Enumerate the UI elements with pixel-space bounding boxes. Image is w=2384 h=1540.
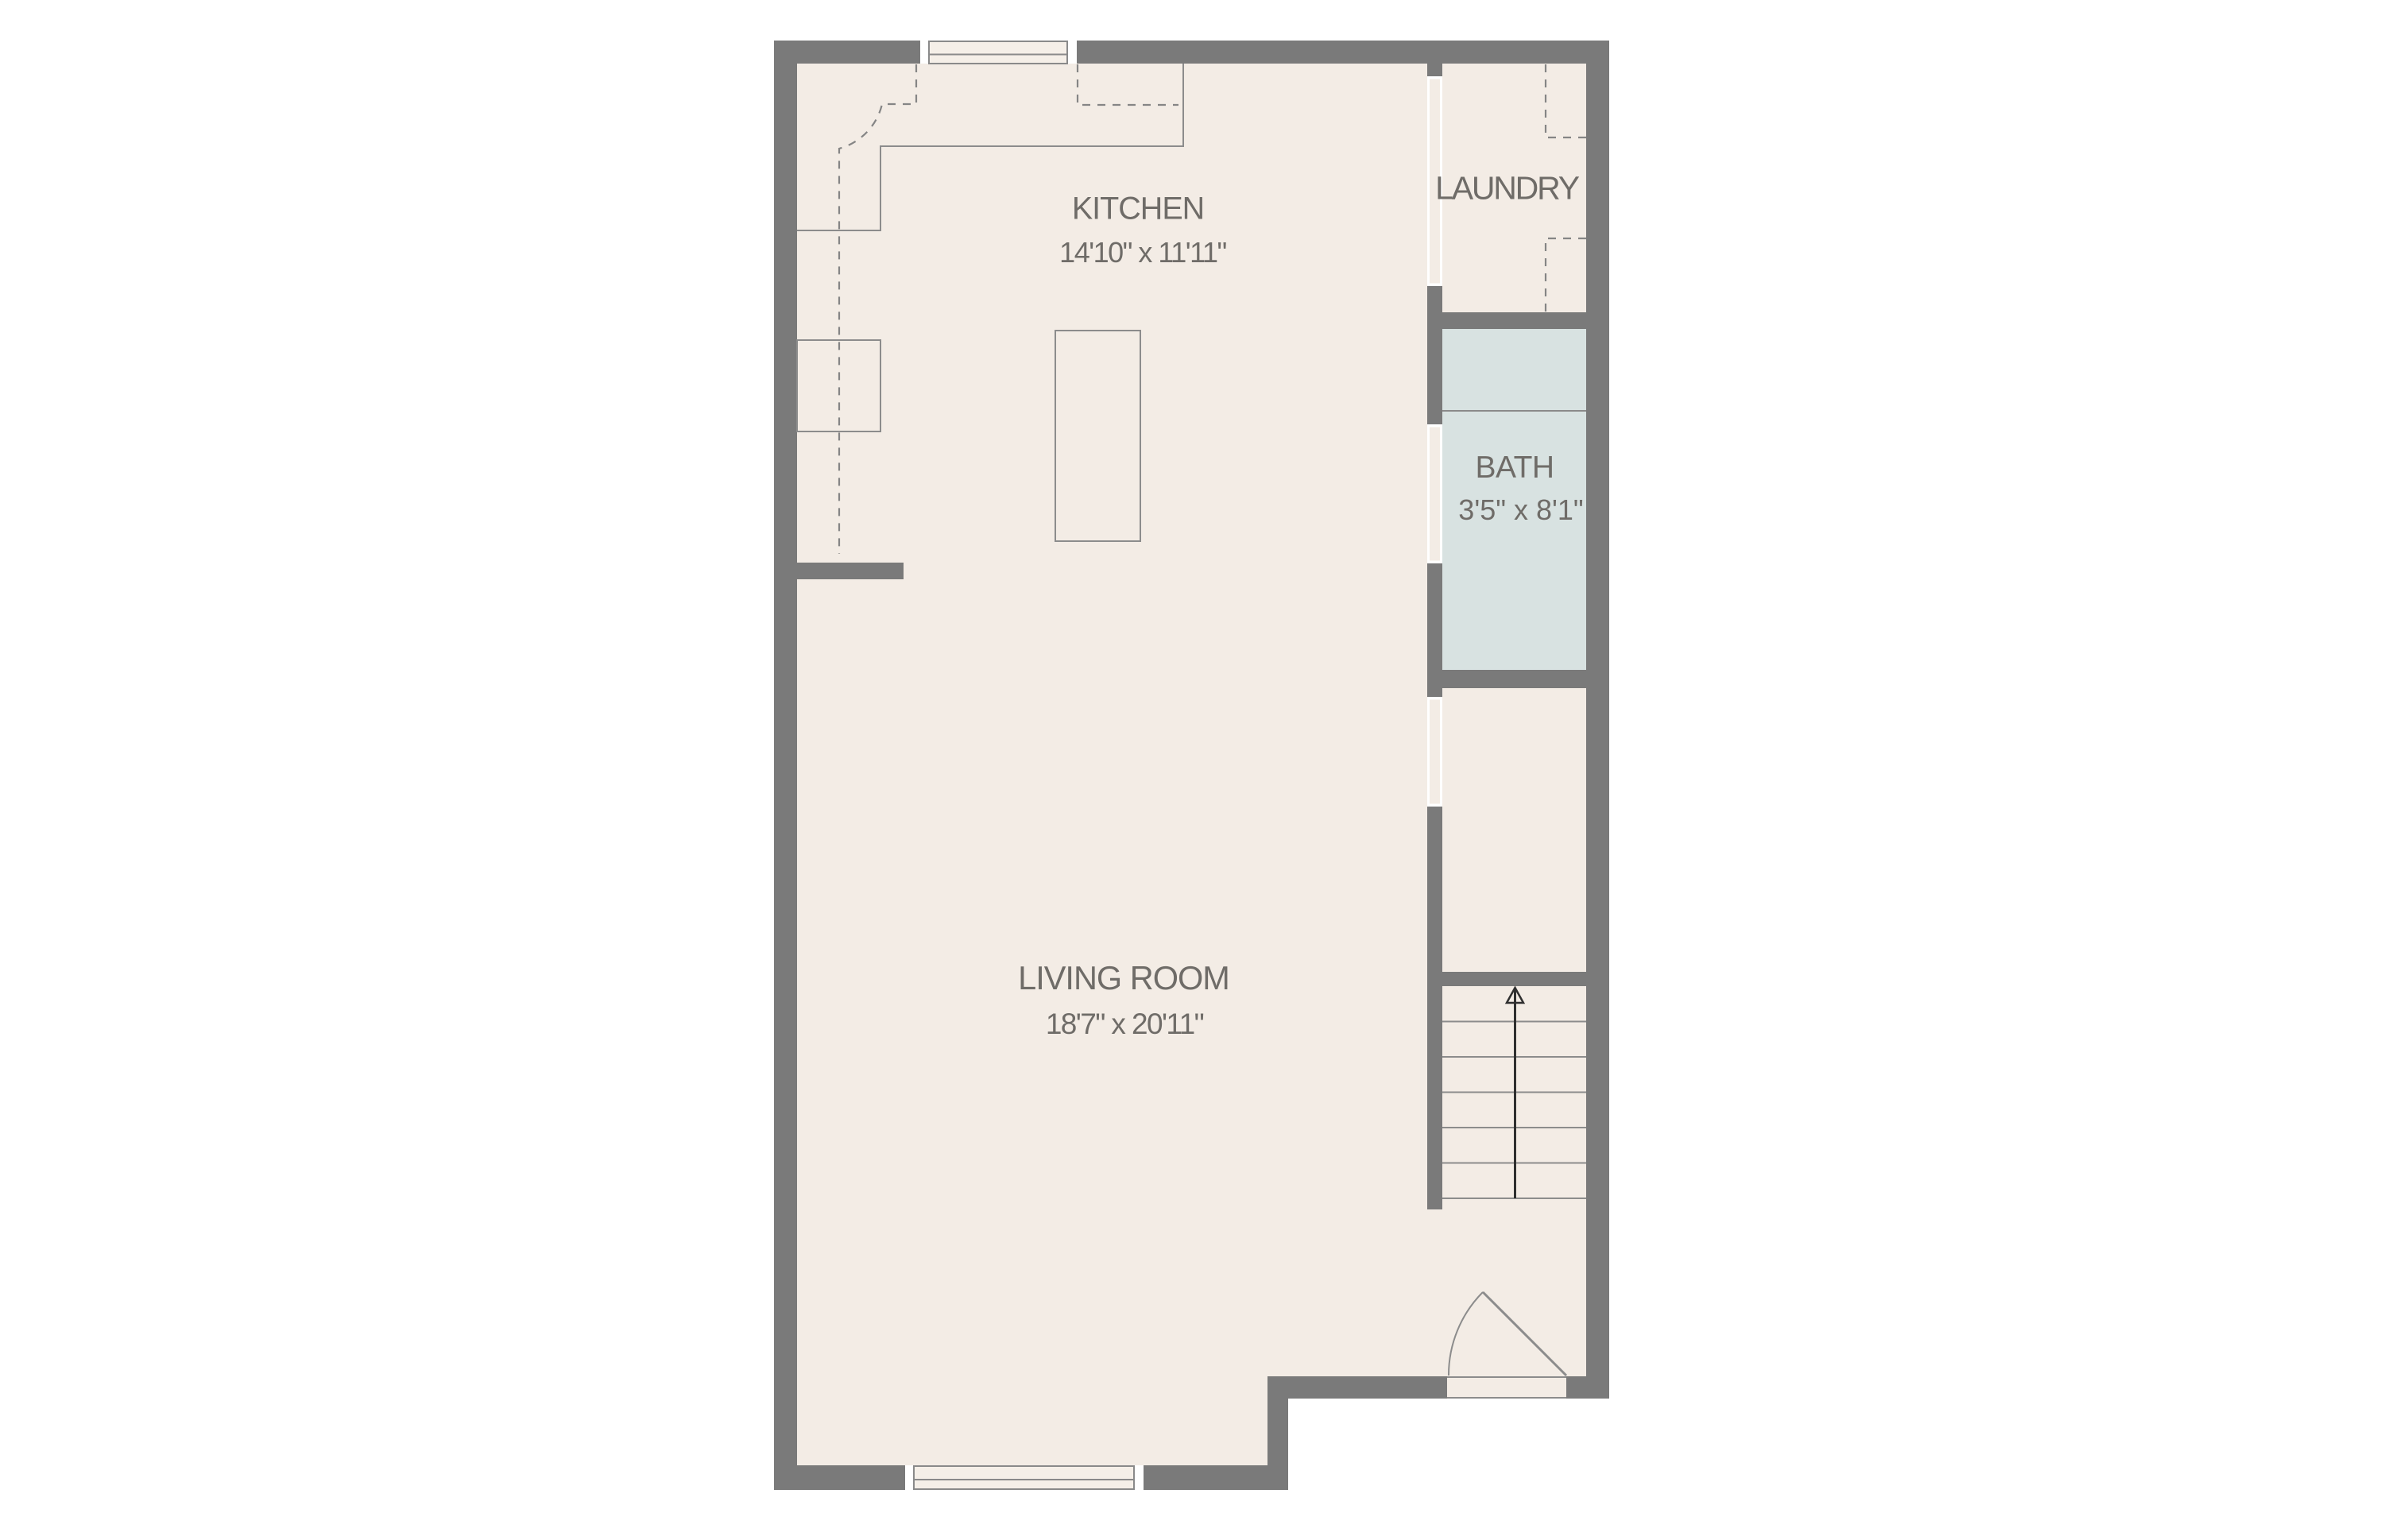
svg-text:3'5" x 8'1": 3'5" x 8'1" bbox=[1458, 493, 1583, 526]
svg-text:LAUNDRY: LAUNDRY bbox=[1435, 169, 1580, 206]
svg-text:LIVING ROOM: LIVING ROOM bbox=[1018, 959, 1229, 996]
svg-text:KITCHEN: KITCHEN bbox=[1072, 192, 1204, 226]
svg-text:BATH: BATH bbox=[1475, 451, 1554, 485]
svg-text:18'7" x 20'11": 18'7" x 20'11" bbox=[1046, 1008, 1204, 1040]
svg-text:14'10" x 11'11": 14'10" x 11'11" bbox=[1059, 236, 1226, 269]
